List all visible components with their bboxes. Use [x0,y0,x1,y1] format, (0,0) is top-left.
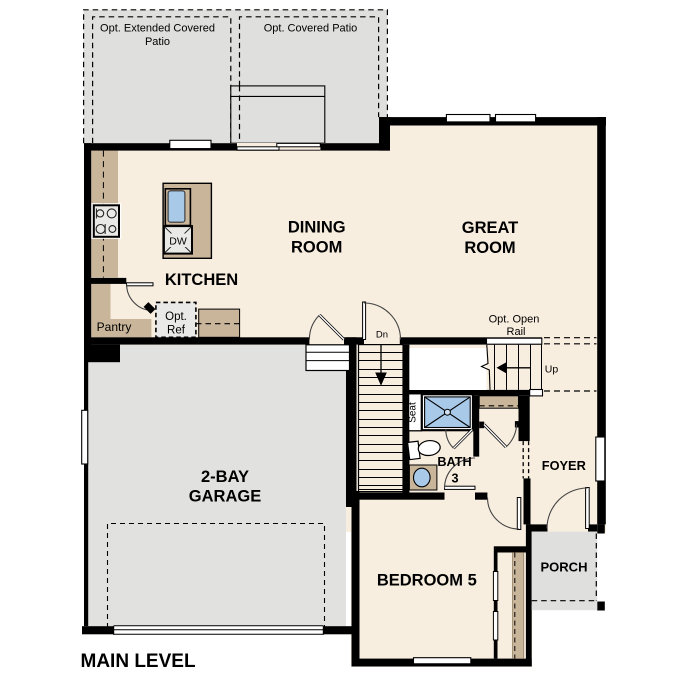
svg-text:FOYER: FOYER [542,458,586,473]
svg-text:DW: DW [169,236,187,248]
svg-text:GARAGE: GARAGE [189,488,261,506]
svg-text:ROOM: ROOM [291,239,342,257]
svg-text:GREAT: GREAT [462,219,519,237]
svg-text:Ref: Ref [167,325,186,337]
svg-text:Opt. Open: Opt. Open [489,314,540,326]
svg-text:Dn: Dn [376,330,388,341]
svg-text:2-BAY: 2-BAY [201,468,249,486]
svg-text:3: 3 [451,472,458,486]
svg-text:BEDROOM 5: BEDROOM 5 [377,572,477,590]
svg-text:Patio: Patio [145,36,170,48]
svg-text:PORCH: PORCH [541,560,588,575]
svg-text:Opt. Extended Covered: Opt. Extended Covered [100,23,215,35]
svg-text:Up: Up [545,364,559,376]
svg-text:Rail: Rail [507,326,526,338]
svg-text:Opt.: Opt. [165,311,187,323]
svg-text:MAIN LEVEL: MAIN LEVEL [81,651,196,672]
svg-text:Pantry: Pantry [97,320,132,334]
svg-text:ROOM: ROOM [464,239,515,257]
svg-text:Seat: Seat [408,402,419,423]
svg-text:Opt. Covered Patio: Opt. Covered Patio [264,23,358,35]
svg-text:DINING: DINING [288,219,346,237]
svg-text:BATH: BATH [437,455,471,469]
svg-text:KITCHEN: KITCHEN [165,271,238,289]
